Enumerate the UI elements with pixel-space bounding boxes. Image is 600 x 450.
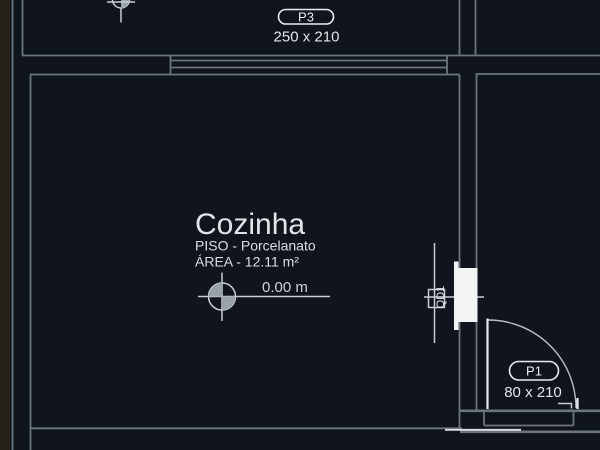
- electrical-panel-qd1: QD1: [424, 243, 484, 343]
- door-p1: P1 80 x 210: [488, 319, 578, 410]
- opening-p3: P3 250 x 210: [171, 10, 448, 75]
- p3-size-label: 250 x 210: [274, 29, 340, 46]
- cad-canvas[interactable]: P3 250 x 210 P1 80 x 210 Cozinha PISO - …: [0, 0, 600, 450]
- room-name-label: Cozinha: [195, 208, 305, 241]
- door-threshold-mark: [558, 404, 572, 409]
- panel-flange-bar: [454, 262, 459, 331]
- room-label-block: Cozinha PISO - Porcelanato ÁREA - 12.11 …: [195, 208, 316, 270]
- level-marker-main: 0.00 m: [198, 273, 330, 322]
- level-value-label: 0.00 m: [262, 279, 308, 296]
- floor-plan-drawing: P3 250 x 210 P1 80 x 210 Cozinha PISO - …: [0, 0, 600, 450]
- p3-tag-label: P3: [298, 10, 314, 25]
- level-marker-top: [107, 0, 135, 23]
- p1-size-label: 80 x 210: [504, 384, 562, 401]
- room-area-label: ÁREA - 12.11 m²: [195, 254, 299, 270]
- level-marker-quadrant-nw: [209, 283, 223, 297]
- room-floor-label: PISO - Porcelanato: [195, 238, 316, 254]
- panel-tag-label: QD1: [435, 286, 447, 309]
- p1-tag-label: P1: [526, 364, 542, 379]
- level-marker-quadrant-se: [222, 297, 236, 311]
- panel-body: [459, 268, 478, 322]
